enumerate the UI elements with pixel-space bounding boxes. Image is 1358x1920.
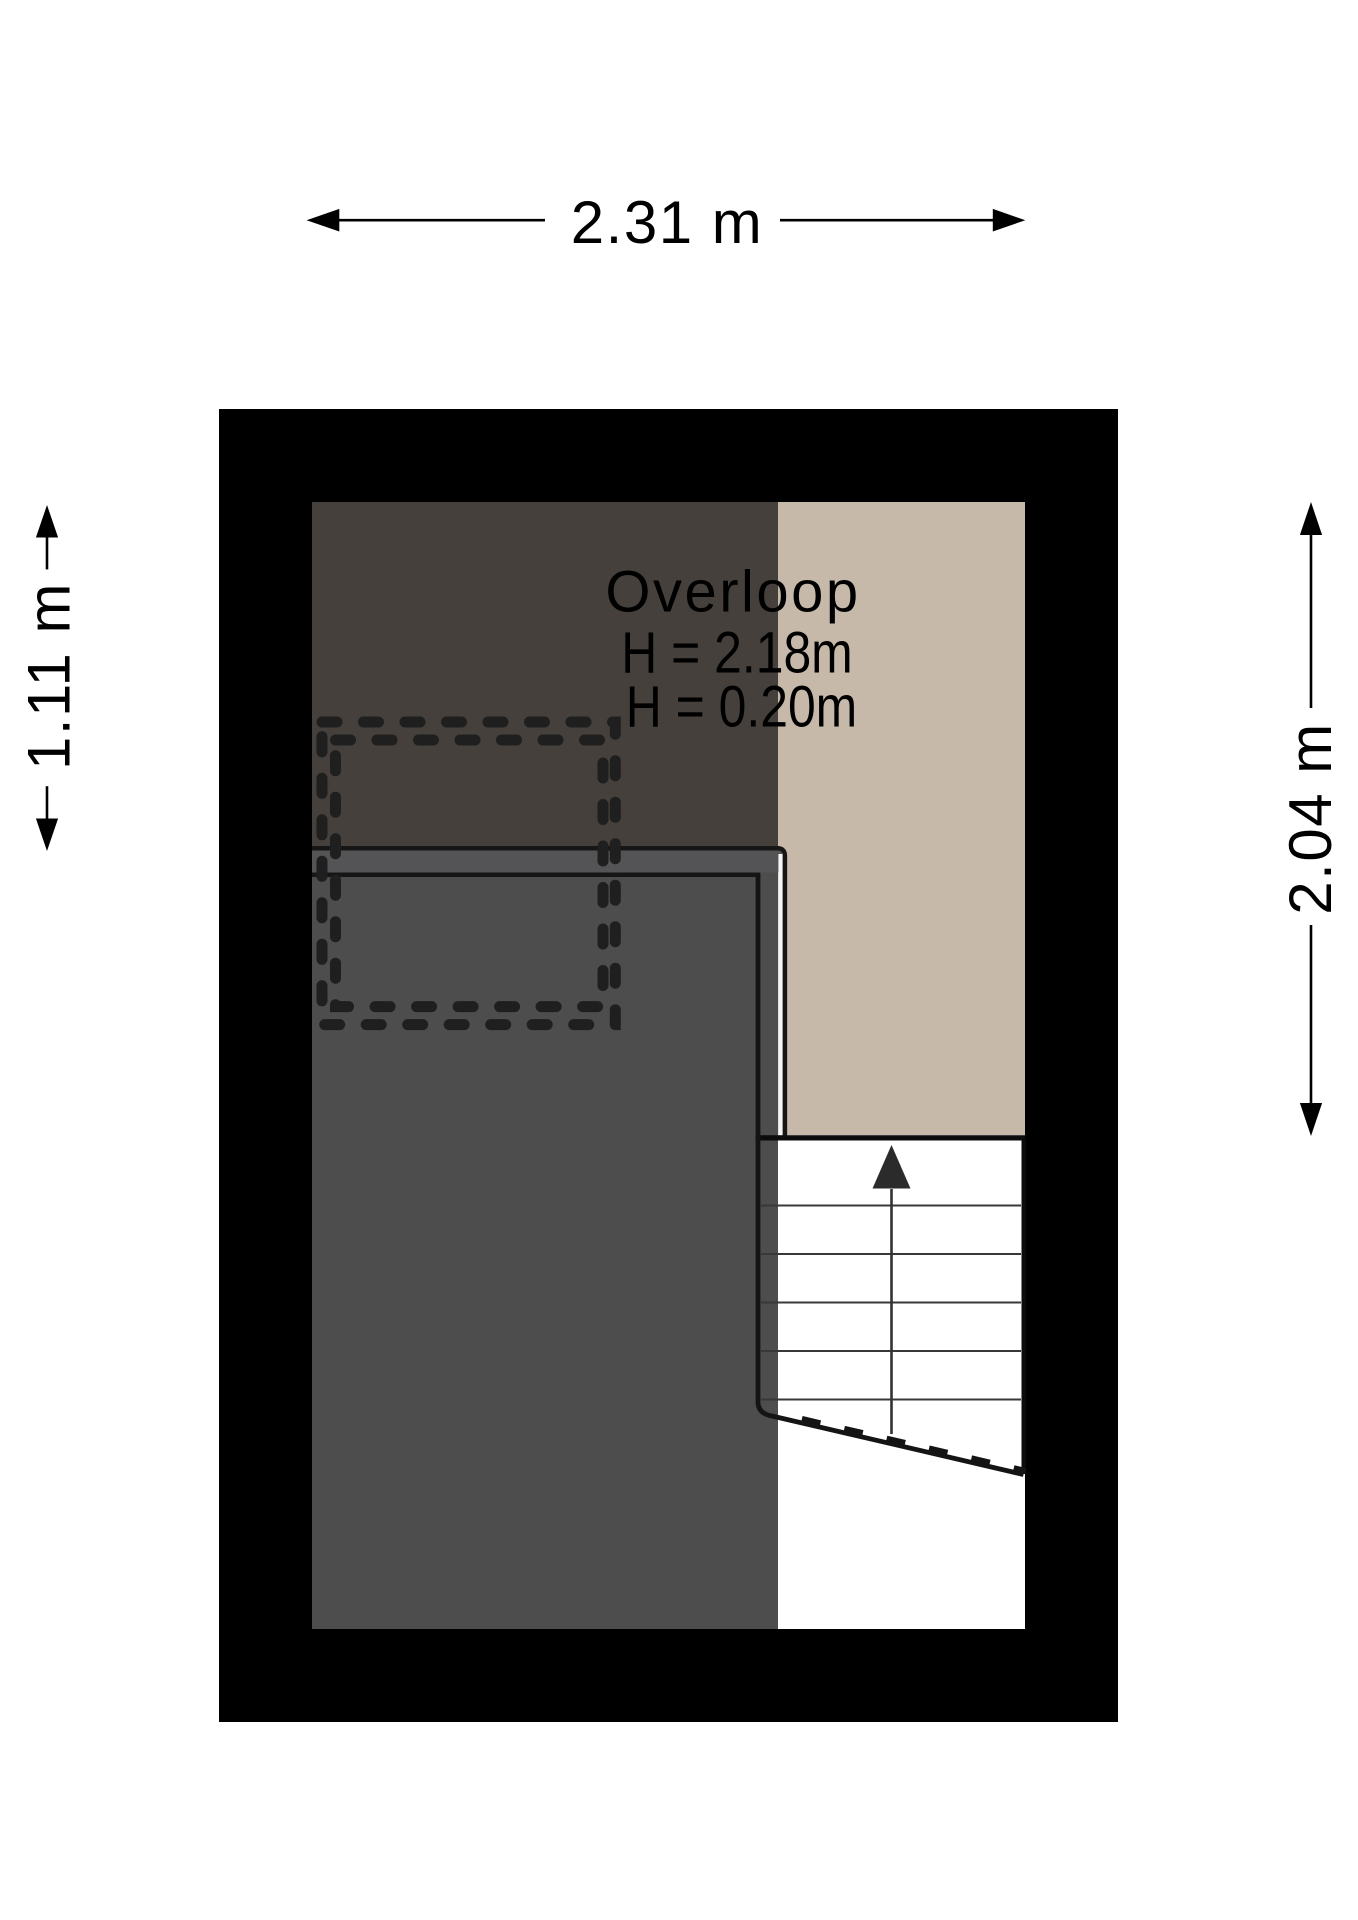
svg-text:2.31 m: 2.31 m [571, 189, 763, 256]
svg-text:2.04 m: 2.04 m [1277, 722, 1344, 914]
svg-text:Overloop: Overloop [605, 560, 860, 625]
svg-text:H = 0.20m: H = 0.20m [626, 675, 857, 739]
svg-text:1.11 m: 1.11 m [16, 582, 83, 770]
